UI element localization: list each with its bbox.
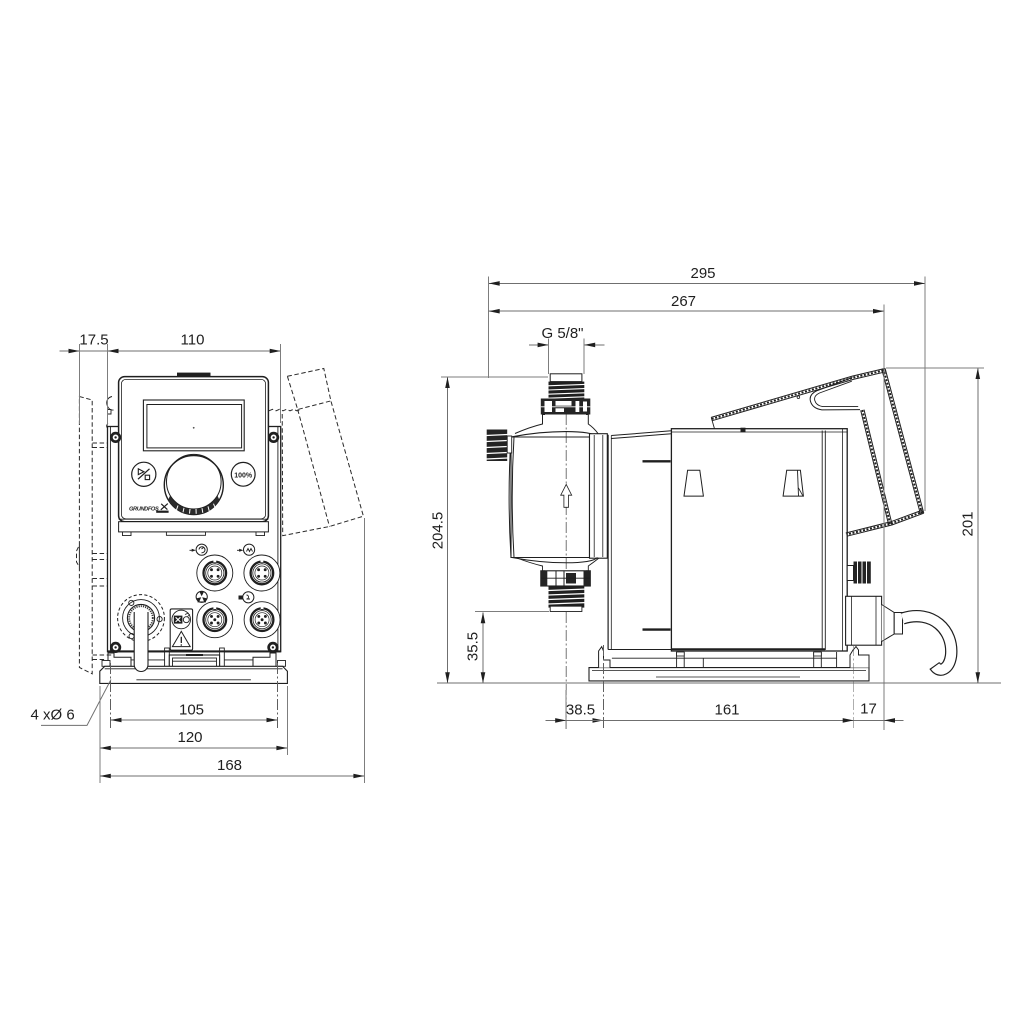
svg-text:110: 110 xyxy=(181,332,205,349)
svg-text:100%: 100% xyxy=(234,473,253,480)
svg-text:4 xØ 6: 4 xØ 6 xyxy=(31,706,75,723)
svg-text:105: 105 xyxy=(179,702,204,719)
svg-text:168: 168 xyxy=(217,757,242,774)
svg-text:120: 120 xyxy=(177,729,202,746)
svg-text:G 5/8": G 5/8" xyxy=(541,325,583,342)
svg-text:201: 201 xyxy=(960,511,977,536)
svg-text:35.5: 35.5 xyxy=(465,632,482,661)
svg-text:295: 295 xyxy=(690,265,715,282)
svg-text:267: 267 xyxy=(671,293,696,310)
svg-text:GRUNDFOS: GRUNDFOS xyxy=(129,507,159,513)
svg-text:161: 161 xyxy=(714,702,739,719)
svg-text:204.5: 204.5 xyxy=(430,512,447,550)
svg-text:38.5: 38.5 xyxy=(566,702,595,719)
svg-text:17: 17 xyxy=(860,701,877,718)
svg-text:17.5: 17.5 xyxy=(79,332,108,349)
